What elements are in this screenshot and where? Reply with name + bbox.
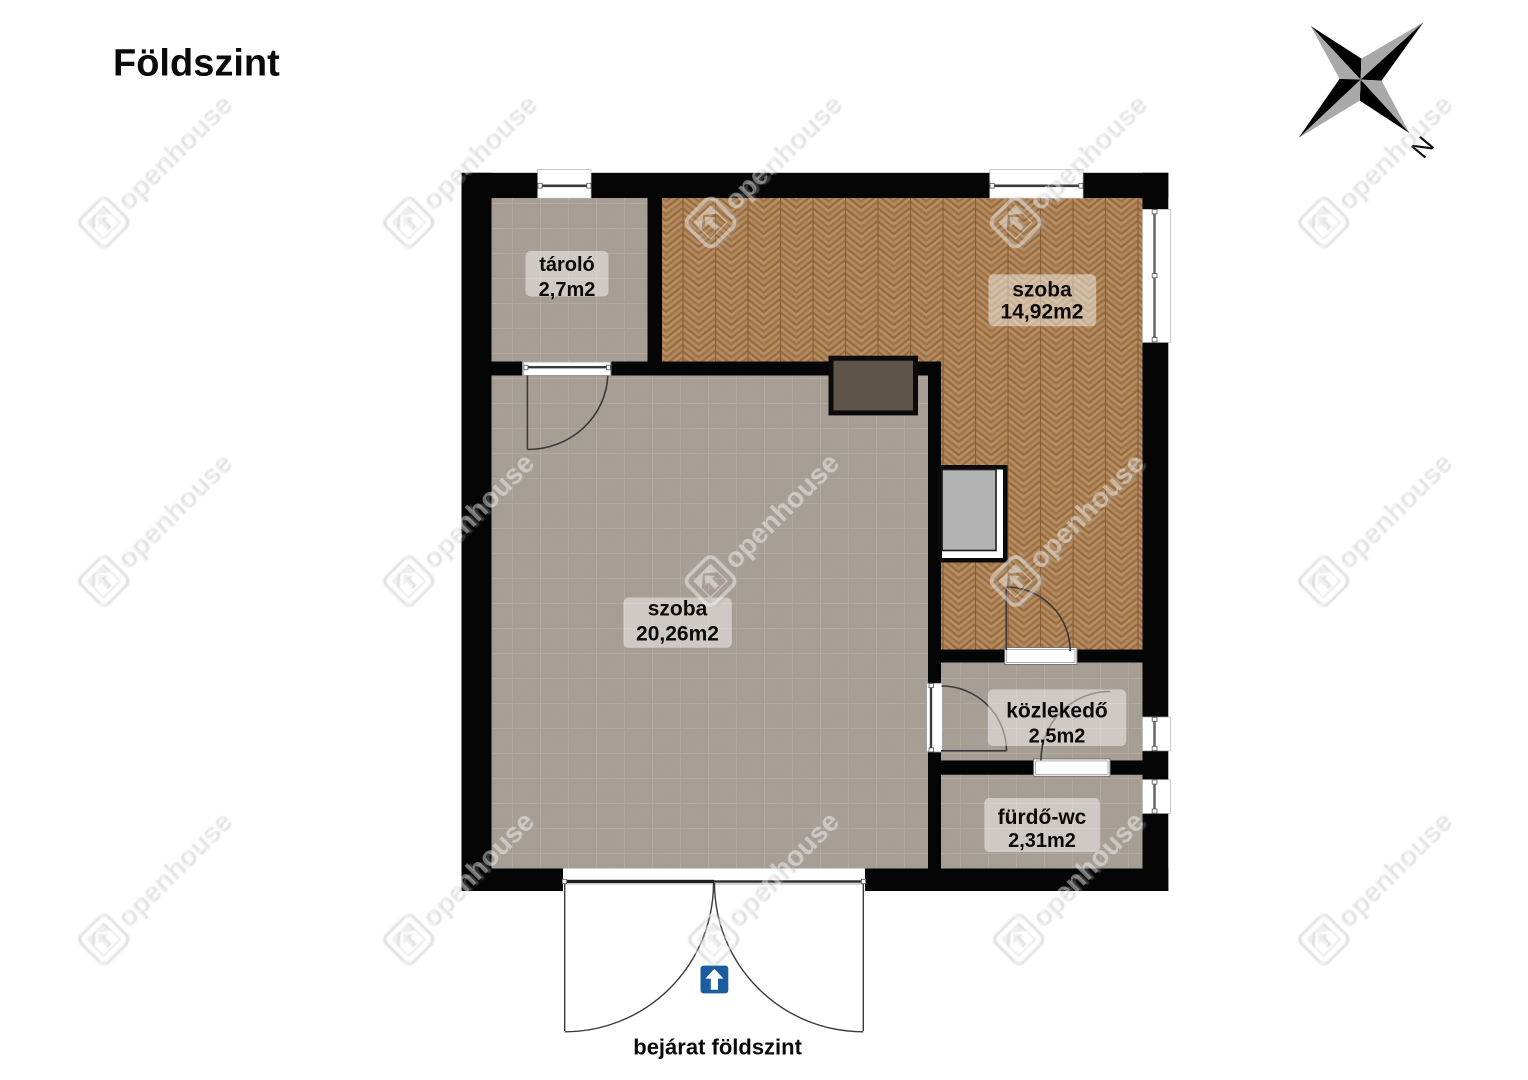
svg-text:2,7m2: 2,7m2	[539, 279, 596, 301]
svg-text:Földszint: Földszint	[113, 43, 280, 85]
svg-text:közlekedő: közlekedő	[1006, 700, 1108, 723]
svg-text:2,5m2: 2,5m2	[1029, 726, 1086, 748]
svg-text:14,92m2: 14,92m2	[1001, 300, 1084, 323]
svg-text:20,26m2: 20,26m2	[636, 623, 719, 646]
svg-text:fürdő-wc: fürdő-wc	[998, 806, 1087, 829]
svg-text:bejárat földszint: bejárat földszint	[633, 1035, 802, 1060]
svg-text:tároló: tároló	[539, 254, 595, 276]
svg-text:szoba: szoba	[1012, 278, 1072, 301]
svg-text:szoba: szoba	[648, 598, 708, 621]
svg-text:2,31m2: 2,31m2	[1008, 830, 1076, 852]
